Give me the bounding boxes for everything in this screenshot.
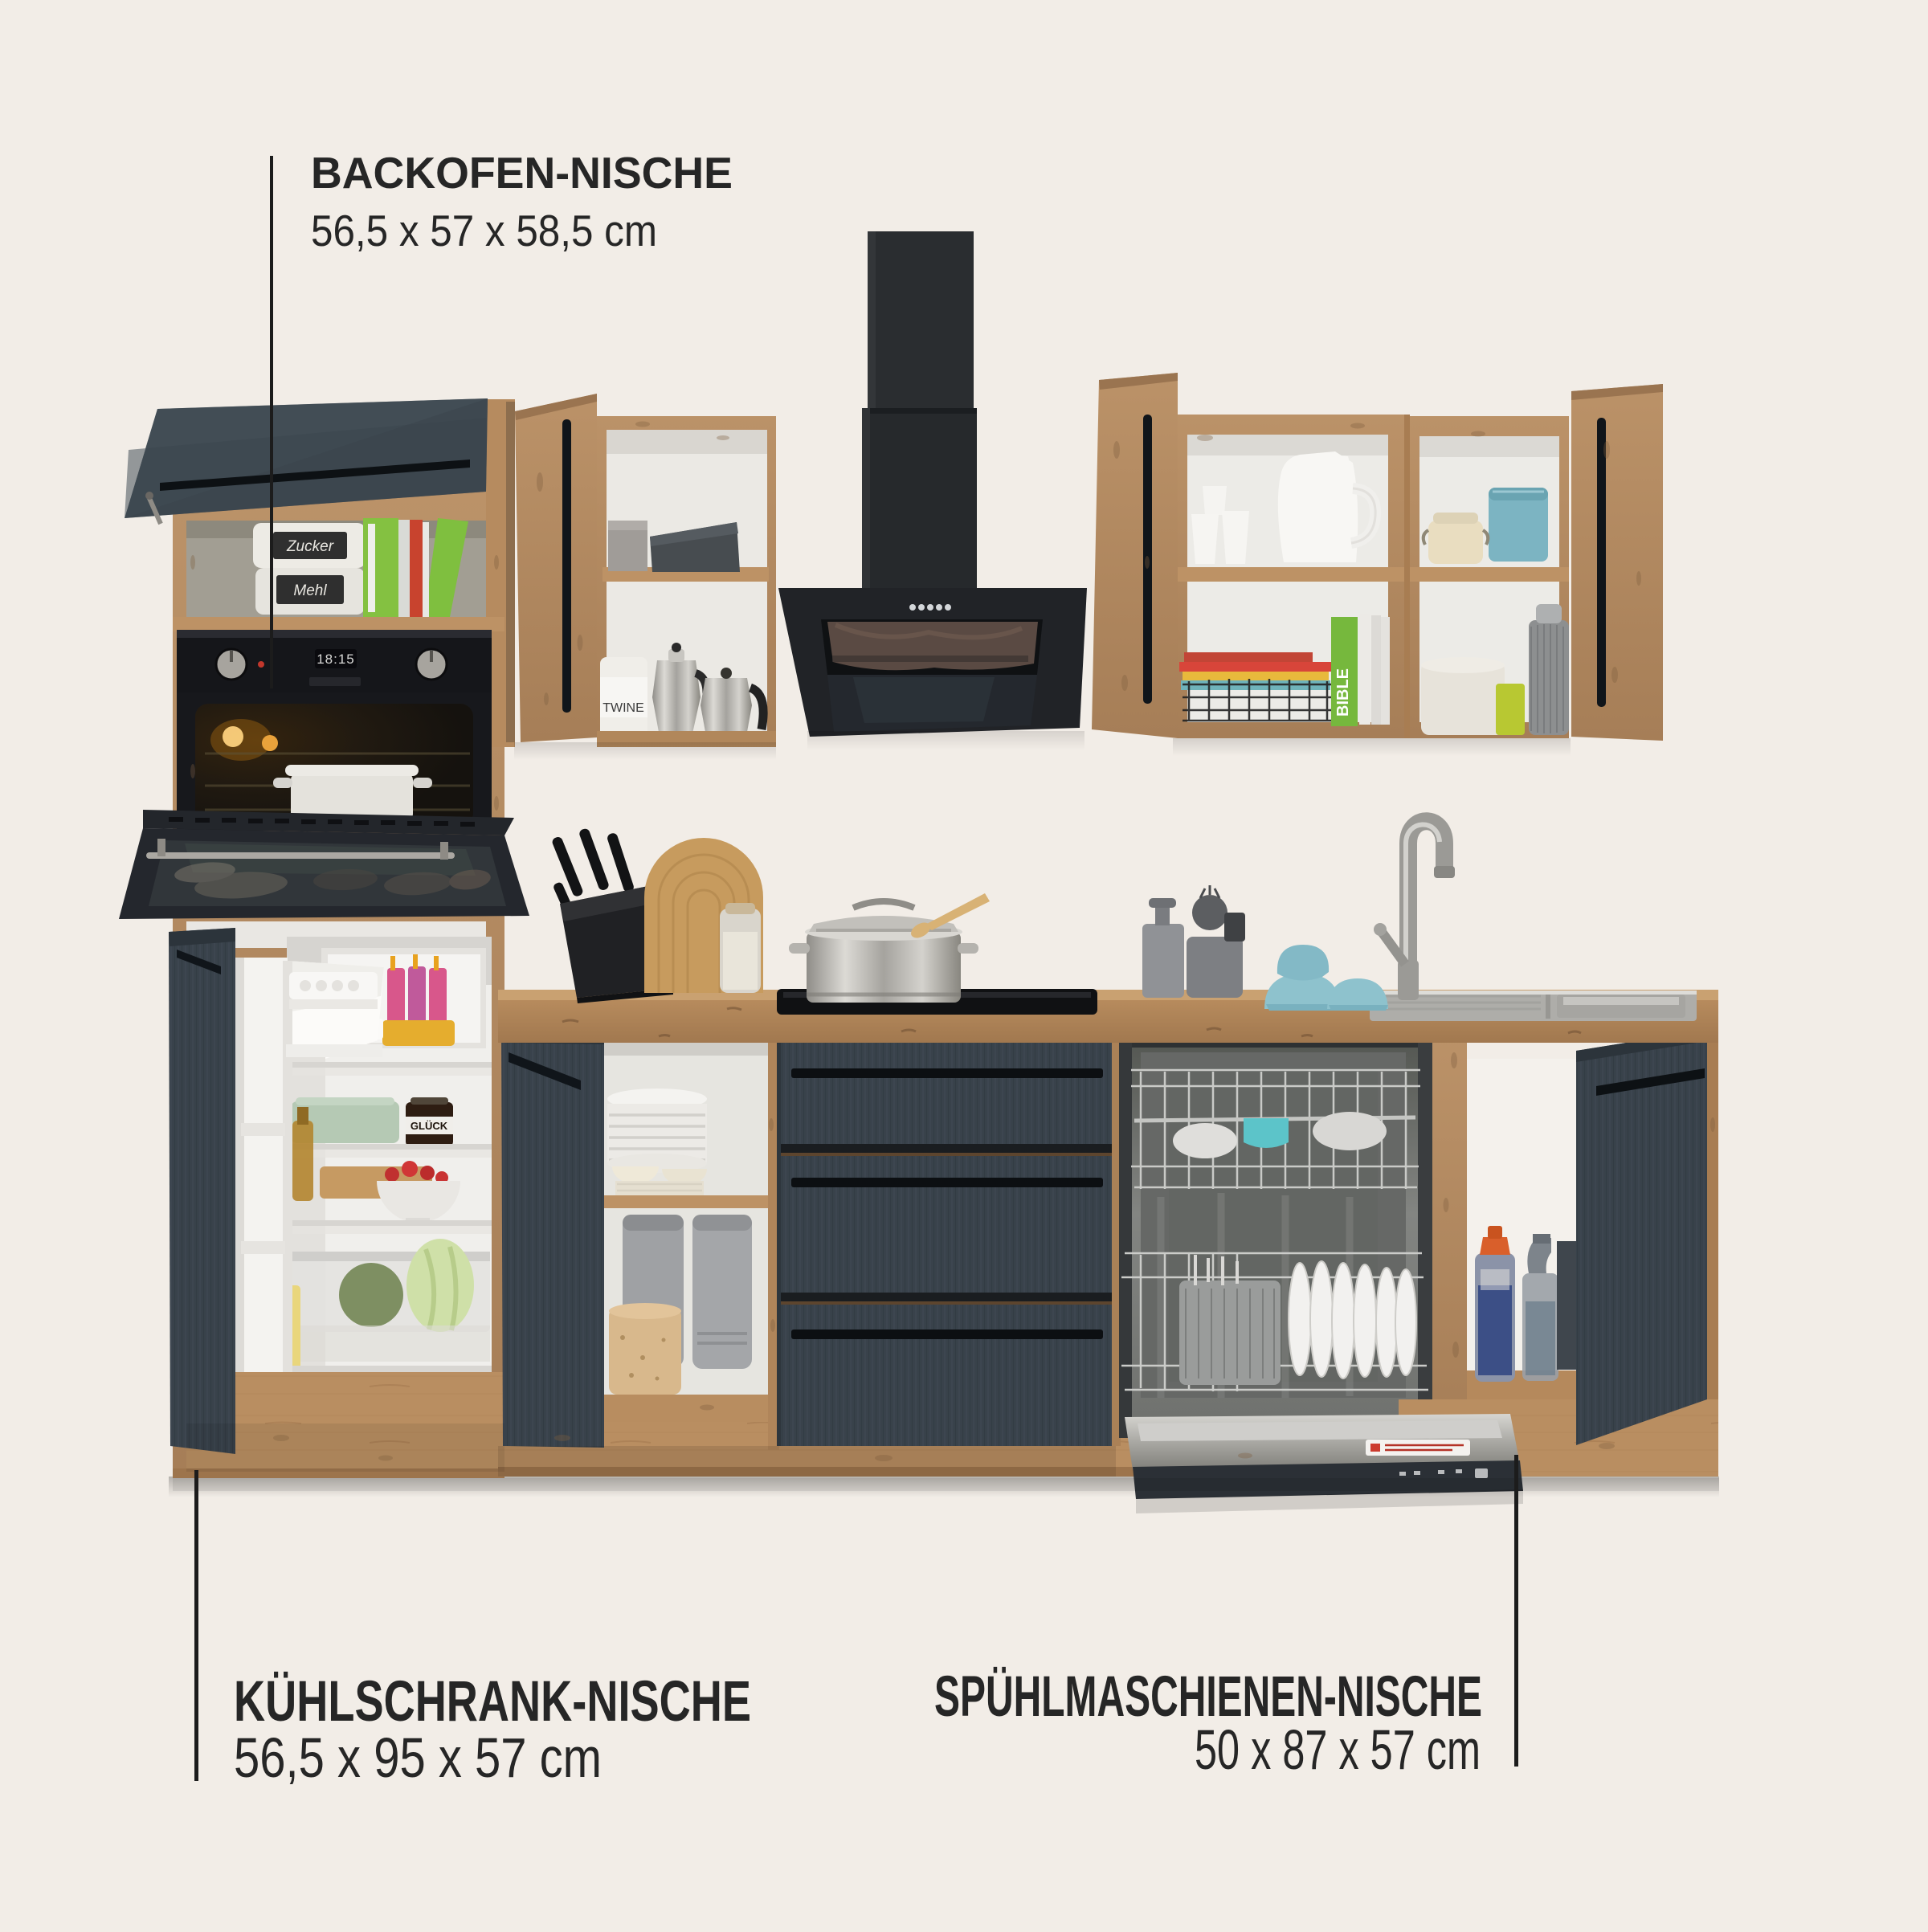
svg-text:56,5 x 95 x 57 cm: 56,5 x 95 x 57 cm [234,1726,602,1789]
svg-text:Mehl: Mehl [293,582,327,599]
svg-text:56,5 x 57 x 58,5 cm: 56,5 x 57 x 58,5 cm [311,206,657,255]
svg-text:BACKOFEN-NISCHE: BACKOFEN-NISCHE [311,148,733,198]
svg-text:Zucker: Zucker [286,538,334,555]
svg-text:KÜHLSCHRANK-NISCHE: KÜHLSCHRANK-NISCHE [234,1670,751,1734]
svg-text:50 x 87 x 57 cm: 50 x 87 x 57 cm [1195,1718,1481,1781]
svg-text:GLÜCK: GLÜCK [411,1120,448,1132]
svg-text:18:15: 18:15 [317,651,355,667]
svg-text:TWINE: TWINE [602,701,644,715]
svg-text:BIBLE: BIBLE [1334,668,1352,717]
